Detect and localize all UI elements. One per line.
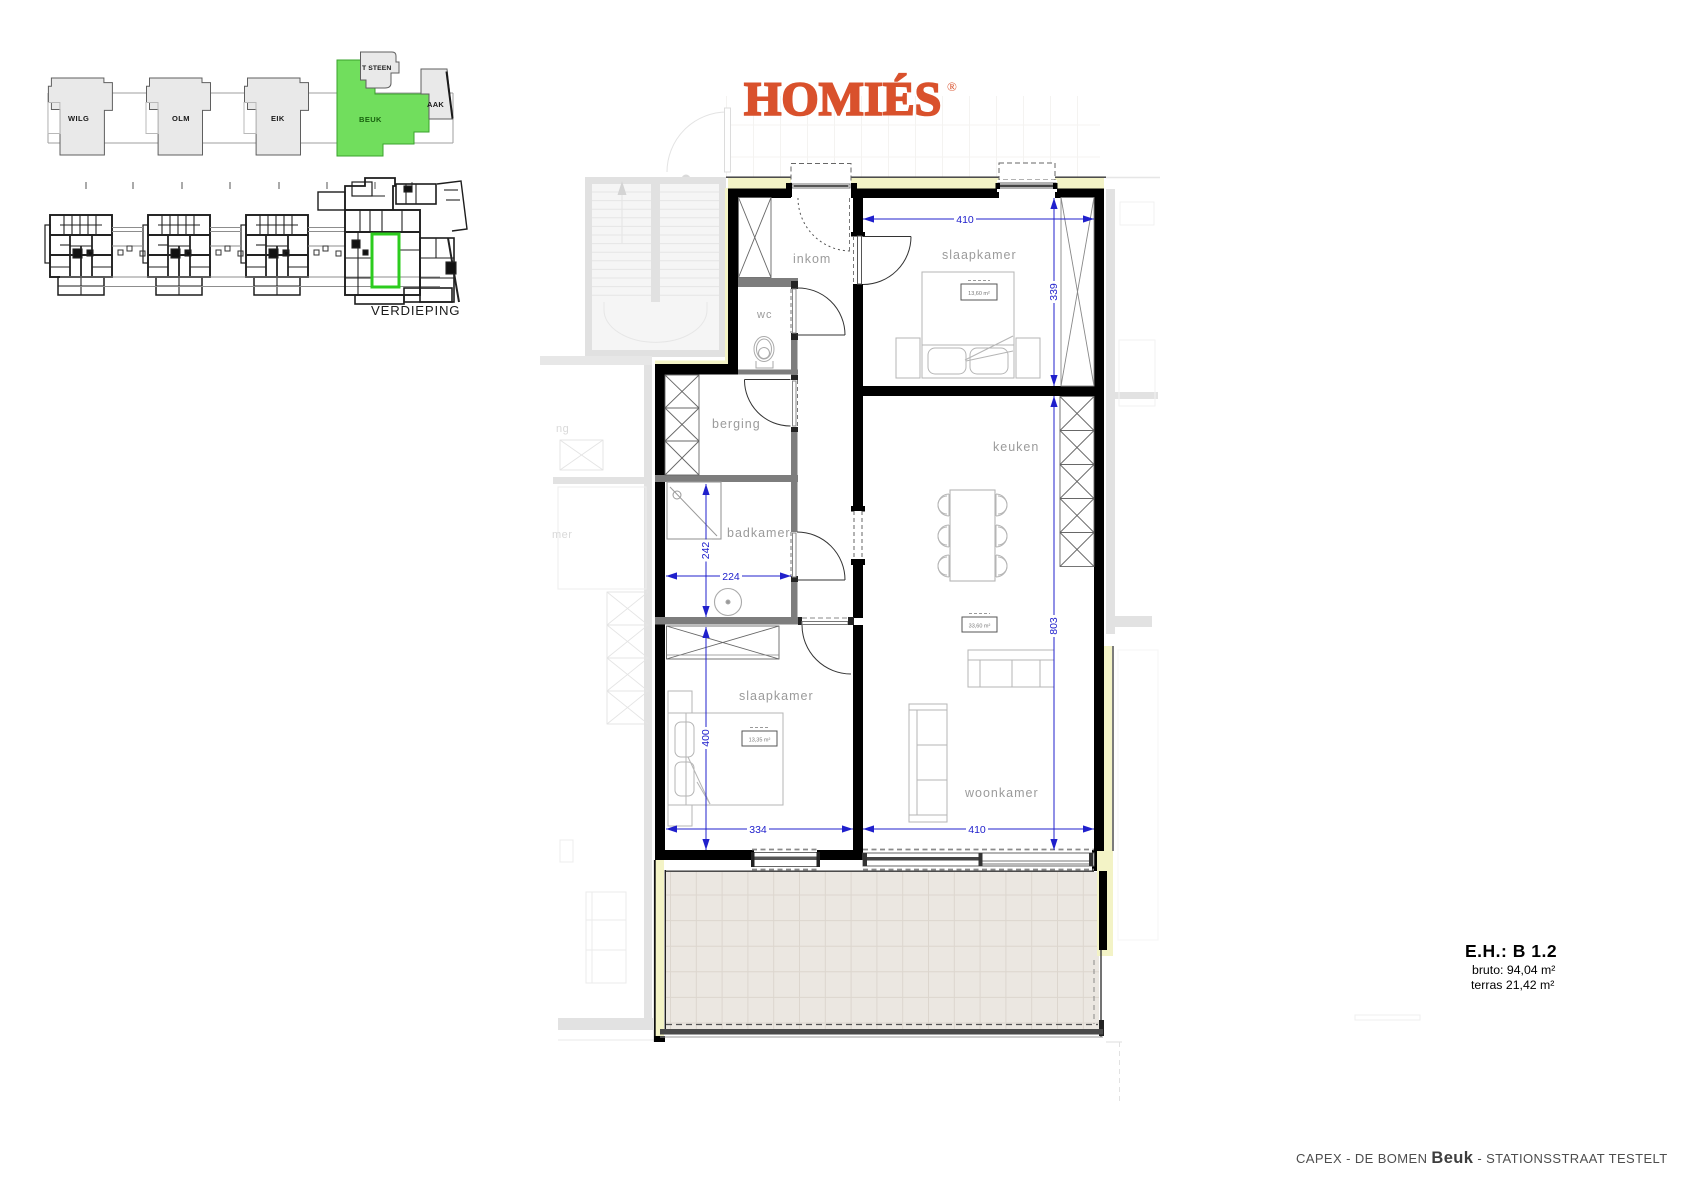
svg-text:WILG: WILG: [68, 114, 89, 123]
svg-text:13,35 m²: 13,35 m²: [749, 738, 771, 744]
svg-text:BEUK: BEUK: [359, 115, 382, 124]
svg-text:400: 400: [700, 729, 712, 747]
svg-text:410: 410: [968, 824, 986, 836]
svg-text:mer: mer: [552, 529, 572, 541]
svg-text:VERDIEPING: VERDIEPING: [371, 303, 460, 318]
svg-text:13,60 m²: 13,60 m²: [968, 291, 990, 297]
svg-text:410: 410: [956, 214, 974, 226]
svg-text:keuken: keuken: [993, 440, 1039, 454]
svg-text:ng: ng: [556, 423, 569, 435]
svg-text:inkom: inkom: [793, 252, 831, 266]
svg-text:339: 339: [1048, 283, 1060, 301]
svg-text:berging: berging: [712, 417, 761, 431]
svg-text:224: 224: [722, 571, 740, 583]
svg-text:bruto: 94,04 m²: bruto: 94,04 m²: [1472, 963, 1555, 977]
svg-text:334: 334: [749, 824, 767, 836]
svg-text:slaapkamer: slaapkamer: [739, 689, 814, 703]
svg-text:33,60 m²: 33,60 m²: [969, 624, 991, 630]
svg-text:EIK: EIK: [271, 114, 285, 123]
svg-text:E.H.: B 1.2: E.H.: B 1.2: [1465, 941, 1557, 961]
svg-text:terras 21,42 m²: terras 21,42 m²: [1471, 978, 1554, 992]
svg-text:803: 803: [1048, 617, 1060, 635]
svg-text:®: ®: [947, 79, 957, 94]
svg-text:AAK: AAK: [427, 100, 444, 109]
svg-text:woonkamer: woonkamer: [964, 786, 1039, 800]
svg-text:242: 242: [700, 542, 712, 560]
svg-text:OLM: OLM: [172, 114, 190, 123]
svg-text:CAPEX - DE BOMEN Beuk - STATIO: CAPEX - DE BOMEN Beuk - STATIONSSTRAAT T…: [1296, 1149, 1668, 1167]
svg-text:slaapkamer: slaapkamer: [942, 248, 1017, 262]
svg-text:wc: wc: [756, 309, 772, 321]
svg-text:HOMIÉS: HOMIÉS: [744, 73, 941, 126]
svg-text:T STEEN: T STEEN: [362, 65, 391, 72]
svg-text:badkamer: badkamer: [727, 526, 791, 540]
